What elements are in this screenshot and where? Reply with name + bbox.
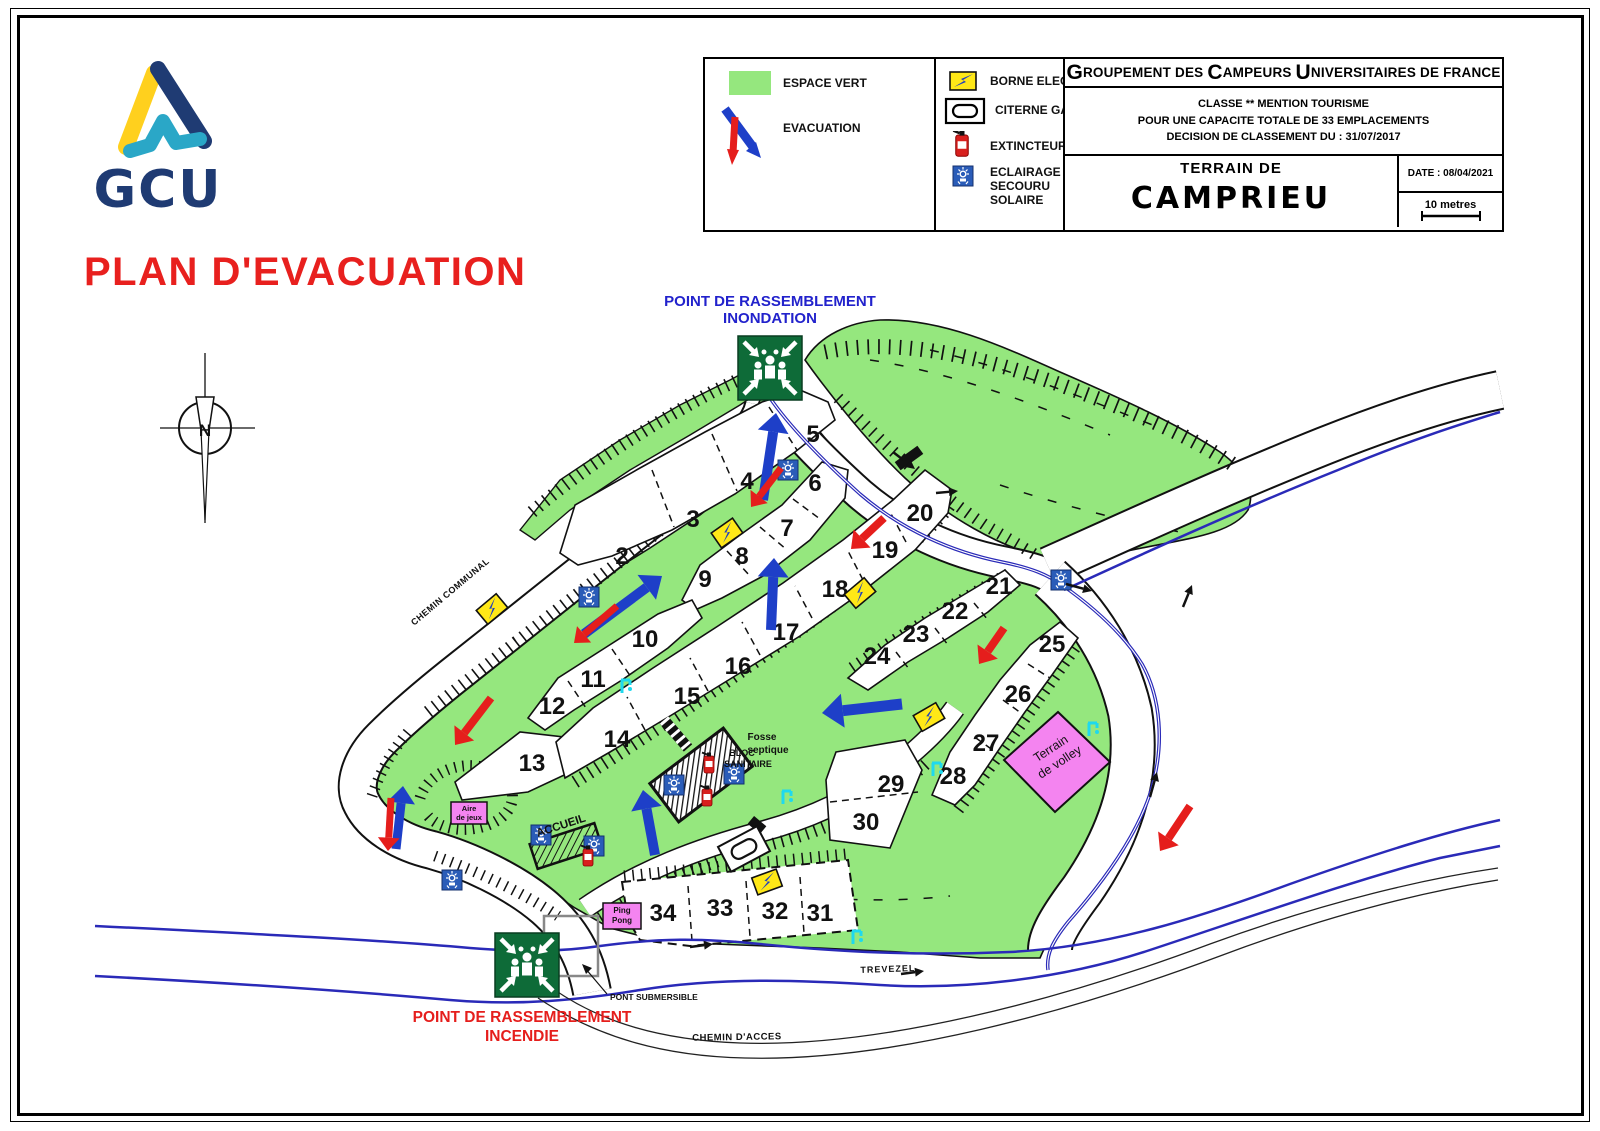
aire-de-jeux: Aire de jeux xyxy=(451,802,487,824)
plot-number: 2 xyxy=(615,543,628,570)
chemin-acces-label: CHEMIN D'ACCES xyxy=(692,1031,782,1044)
plot-number: 5 xyxy=(806,421,819,448)
pingpong-label-line: Pong xyxy=(612,916,632,925)
plot-number: 28 xyxy=(940,763,967,790)
plot-number: 11 xyxy=(580,666,605,693)
plot-number: 32 xyxy=(762,898,789,925)
plot-number: 6 xyxy=(808,470,821,497)
plot-number: 27 xyxy=(973,730,1000,757)
plot-number: 23 xyxy=(903,621,930,648)
plot-number: 4 xyxy=(740,468,754,495)
plot-number: 26 xyxy=(1005,681,1032,708)
plot-number: 7 xyxy=(780,515,793,542)
eclairage-secouru-solaire-icon xyxy=(664,775,684,795)
compass-north-label: N xyxy=(199,421,211,440)
bloc-sanitaire-label: BLOC xyxy=(729,748,755,758)
plot-number: 18 xyxy=(822,576,849,603)
plot-number: 22 xyxy=(942,598,969,625)
plot-number: 8 xyxy=(735,543,748,570)
assembly-flood-label: INONDATION xyxy=(723,310,817,327)
bloc-sanitaire-label: SANITAIRE xyxy=(724,759,772,769)
assembly-flood-label: POINT DE RASSEMBLEMENT xyxy=(664,293,876,310)
eclairage-secouru-solaire-icon xyxy=(442,870,462,890)
plot-number: 15 xyxy=(674,683,701,710)
plot-number: 14 xyxy=(604,726,631,753)
plot-number: 31 xyxy=(807,900,834,927)
eclairage-secouru-solaire-icon xyxy=(1051,570,1071,590)
compass-rose: N xyxy=(155,345,265,535)
plot-number: 13 xyxy=(519,750,546,777)
fosse-septique-label: Fosse xyxy=(748,732,777,743)
plot-number: 25 xyxy=(1039,631,1066,658)
plot-number: 20 xyxy=(907,500,934,527)
evacuation-plan-page: GCU PLAN D'EVACUATION ESPACE VERT EVACUA… xyxy=(0,0,1600,1131)
plot-number: 29 xyxy=(878,771,905,798)
assembly-fire-label: POINT DE RASSEMBLEMENT xyxy=(413,1009,632,1026)
assembly-point-fire-icon xyxy=(495,933,559,997)
assembly-point-flood-icon xyxy=(738,336,802,400)
plot-number: 24 xyxy=(864,643,891,670)
evacuation-arrow xyxy=(1158,806,1190,851)
aire-label-line: de jeux xyxy=(456,813,483,822)
plot-number: 17 xyxy=(773,619,800,646)
plot-number: 33 xyxy=(707,895,734,922)
plot-number: 3 xyxy=(686,506,699,533)
site-map: Terrain de volley Aire de jeux Ping Pong… xyxy=(0,0,1600,1131)
ping-pong: Ping Pong xyxy=(603,903,641,929)
plot-number: 10 xyxy=(632,626,659,653)
aire-label-line: Aire xyxy=(462,804,477,813)
plot-number: 9 xyxy=(698,566,711,593)
plot-number: 19 xyxy=(872,537,899,564)
plot-number: 30 xyxy=(853,809,880,836)
pont-submersible-label: PONT SUBMERSIBLE xyxy=(610,992,698,1002)
plot-number: 12 xyxy=(539,693,566,720)
flow-arrow xyxy=(1183,585,1193,607)
chemin-communal-label: CHEMIN COMMUNAL xyxy=(409,556,491,627)
trevezel-label: TREVEZEL xyxy=(860,963,915,975)
plot-number: 34 xyxy=(650,900,677,927)
pingpong-label-line: Ping xyxy=(613,906,630,915)
assembly-fire-label: INCENDIE xyxy=(485,1028,559,1045)
plot-number: 16 xyxy=(725,653,752,680)
plot-number: 21 xyxy=(986,573,1013,600)
eclairage-secouru-solaire-icon xyxy=(579,587,599,607)
